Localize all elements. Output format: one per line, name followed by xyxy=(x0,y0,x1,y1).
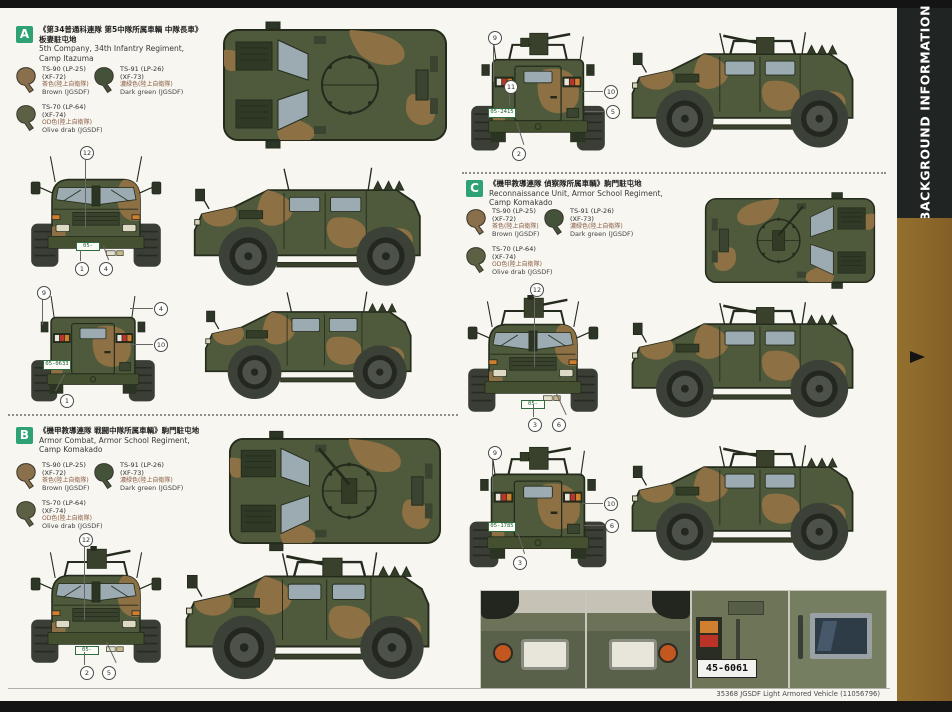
paint-name-en: Dark green (JGSDF) xyxy=(120,485,183,493)
vehicle-c-rear-view xyxy=(465,444,611,579)
footer-rule xyxy=(8,688,890,689)
section-c-title-jp: 《機甲教導連隊 偵察隊所属車輌》駒門駐屯地 xyxy=(489,179,704,189)
leader-line xyxy=(84,652,85,665)
leader-line xyxy=(534,297,535,367)
paint-name-en: Dark green (JGSDF) xyxy=(120,89,183,97)
callout-marker: 3 xyxy=(513,556,527,570)
photo-rear-window-detail xyxy=(789,590,887,689)
callout-marker: 4 xyxy=(99,262,113,276)
sidebar-header: BACKGROUND INFORMATION xyxy=(897,8,952,218)
vehicle-b-side-view-2 xyxy=(622,22,884,170)
paint-code-alt: (XF-74) xyxy=(42,508,103,516)
vehicle-b-rear-view xyxy=(465,30,611,162)
vehicle-c-side-view xyxy=(622,300,884,432)
photo-headlight xyxy=(609,639,657,670)
callout-marker: 12 xyxy=(80,146,94,160)
paint-name-en: Dark green (JGSDF) xyxy=(570,231,633,239)
paint-chip-icon xyxy=(92,462,116,490)
leader-line xyxy=(84,547,85,620)
callout-marker: 6 xyxy=(605,519,619,533)
photo-license-plate: 45-6061 xyxy=(697,659,757,678)
callout-marker: 3 xyxy=(528,418,542,432)
leader-line xyxy=(585,111,605,112)
paint-entry-ts91: TS-91 (LP-26)(XF-73)濃緑色(陸上自衛隊)Dark green… xyxy=(92,462,198,492)
callout-marker: 6 xyxy=(552,418,566,432)
paint-name-en: Brown (JGSDF) xyxy=(42,89,89,97)
leader-line xyxy=(80,250,81,261)
instruction-sheet-page: BACKGROUND INFORMATION A 《第34普通科連隊 第5中隊所… xyxy=(0,0,952,712)
photo-rear-corner: 45-6061 xyxy=(691,590,789,689)
callout-marker: 1 xyxy=(75,262,89,276)
paint-name-en: Olive drab (JGSDF) xyxy=(42,127,103,135)
section-c-label: C xyxy=(466,180,483,197)
license-plate-b-front: 05-2415 xyxy=(75,646,99,655)
leader-line xyxy=(130,344,153,345)
leader-line xyxy=(85,160,86,228)
paint-name-en: Brown (JGSDF) xyxy=(492,231,539,239)
sidebar-brown-strip xyxy=(897,218,952,701)
vehicle-c-top-view xyxy=(695,183,885,298)
callout-marker: 2 xyxy=(512,147,526,161)
photo-handle xyxy=(728,601,764,615)
leader-line xyxy=(130,308,153,309)
license-plate-c-rear: 05-1785 xyxy=(488,522,516,532)
callout-marker: 10 xyxy=(154,338,168,352)
paint-chip-icon xyxy=(14,500,38,528)
photo-headlight xyxy=(521,639,569,670)
photo-taillight-red xyxy=(700,635,718,647)
callout-marker: 9 xyxy=(488,446,502,460)
leader-line xyxy=(584,525,604,526)
callout-marker: 5 xyxy=(606,105,620,119)
photo-front-left-corner xyxy=(480,590,586,689)
leader-line xyxy=(583,503,603,504)
paint-code-alt: (XF-73) xyxy=(120,470,183,478)
leader-line xyxy=(492,459,493,492)
paint-chip-icon xyxy=(92,66,116,94)
section-a-label: A xyxy=(16,26,33,43)
paint-code-alt: (XF-72) xyxy=(42,470,89,478)
callout-marker: 9 xyxy=(488,31,502,45)
paint-code-alt: (XF-74) xyxy=(42,112,103,120)
photo-blinker-light xyxy=(658,643,678,663)
paint-code-alt: (XF-74) xyxy=(492,254,553,262)
leader-line xyxy=(493,44,494,82)
paint-chip-icon xyxy=(464,208,488,236)
section-b-label: B xyxy=(16,427,33,444)
paint-code-alt: (XF-72) xyxy=(42,74,89,82)
paint-code-alt: (XF-73) xyxy=(120,74,183,82)
sidebar-title: BACKGROUND INFORMATION xyxy=(917,5,932,221)
paint-chip-icon xyxy=(14,66,38,94)
paint-chip-icon xyxy=(542,208,566,236)
paint-code-alt: (XF-73) xyxy=(570,216,633,224)
top-border-bar xyxy=(0,0,952,8)
vehicle-a-side-view xyxy=(178,166,458,300)
callout-marker: 1 xyxy=(60,394,74,408)
callout-marker: 10 xyxy=(604,497,618,511)
paint-chip-icon xyxy=(464,246,488,274)
paint-entry-ts91: TS-91 (LP-26)(XF-73)濃緑色(陸上自衛隊)Dark green… xyxy=(92,66,198,96)
paint-entry-ts70: TS-70 (LP-64)(XF-74)OD色(陸上自衛隊)Olive drab… xyxy=(14,500,120,530)
callout-marker: 4 xyxy=(154,302,168,316)
photo-window-handle xyxy=(798,615,803,659)
license-plate-a-rear: 05-0633 xyxy=(43,360,71,370)
leader-line xyxy=(509,93,510,105)
vehicle-b-side-view xyxy=(175,550,463,695)
section-c-header: 《機甲教導連隊 偵察隊所属車輌》駒門駐屯地 Reconnaissance Uni… xyxy=(489,179,704,208)
leader-line xyxy=(533,404,534,417)
vehicle-a-side-view-2 xyxy=(178,290,458,412)
photo-blinker-light xyxy=(493,643,513,663)
paint-entry-ts70: TS-70 (LP-64)(XF-74)OD色(陸上自衛隊)Olive drab… xyxy=(14,104,120,134)
leader-line xyxy=(42,299,43,325)
paint-chip-icon xyxy=(14,462,38,490)
callout-marker: 9 xyxy=(37,286,51,300)
paint-entry-ts91: TS-91 (LP-26)(XF-73)濃緑色(陸上自衛隊)Dark green… xyxy=(542,208,648,238)
footer-product-text: 35368 JGSDF Light Armored Vehicle (11056… xyxy=(480,690,880,698)
callout-marker: 10 xyxy=(604,85,618,99)
callout-marker: 2 xyxy=(80,666,94,680)
photo-front-right-corner xyxy=(586,590,691,689)
leader-line xyxy=(583,91,603,92)
paint-code-alt: (XF-72) xyxy=(492,216,539,224)
callout-marker: 11 xyxy=(504,80,518,94)
vehicle-a-top-view xyxy=(210,10,460,160)
photo-taillight-amber xyxy=(700,621,718,633)
vehicle-b-front-view xyxy=(28,545,164,675)
callout-marker: 5 xyxy=(102,666,116,680)
vehicle-a-front-view xyxy=(28,150,164,278)
paint-entry-ts70: TS-70 (LP-64)(XF-74)OD色(陸上自衛隊)Olive drab… xyxy=(464,246,570,276)
paint-name-en: Brown (JGSDF) xyxy=(42,485,89,493)
paint-name-en: Olive drab (JGSDF) xyxy=(42,523,103,531)
section-c-title-en: Reconnaissance Unit, Armor School Regime… xyxy=(489,189,704,199)
callout-marker: 12 xyxy=(530,283,544,297)
paint-name-en: Olive drab (JGSDF) xyxy=(492,269,553,277)
section-divider xyxy=(462,172,886,174)
bottom-border-bar xyxy=(0,701,952,712)
vehicle-c-side-view-2 xyxy=(622,440,884,578)
arrow-right-icon xyxy=(910,351,925,363)
paint-chip-icon xyxy=(14,104,38,132)
license-plate-b-rear: 05-2415 xyxy=(488,108,516,118)
callout-marker: 12 xyxy=(79,533,93,547)
section-divider xyxy=(8,414,458,416)
vehicle-b-top-view xyxy=(210,420,460,562)
